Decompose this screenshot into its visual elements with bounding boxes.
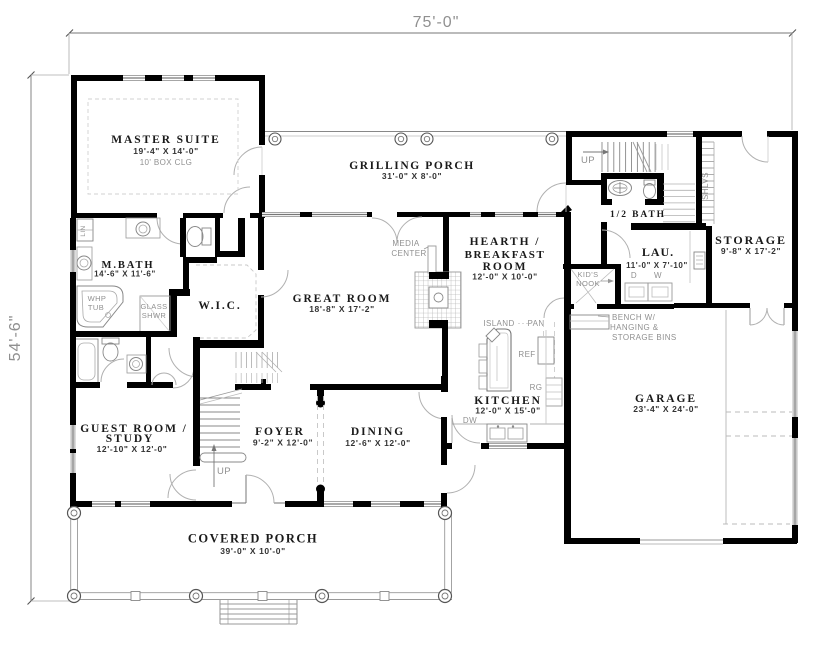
svg-text:UP: UP (581, 155, 595, 166)
svg-text:KID'S: KID'S (578, 270, 599, 279)
svg-text:HANGING &: HANGING & (610, 323, 659, 332)
svg-text:CENTER: CENTER (391, 249, 426, 258)
svg-text:NOOK: NOOK (576, 279, 600, 288)
svg-text:9'-8" X 17'-2": 9'-8" X 17'-2" (721, 246, 781, 256)
svg-text:BENCH W/: BENCH W/ (612, 313, 656, 322)
svg-text:FOYER: FOYER (255, 426, 305, 438)
svg-text:SHWR: SHWR (142, 311, 167, 320)
svg-text:54'-6": 54'-6" (7, 315, 24, 362)
svg-text:LAU.: LAU. (642, 245, 674, 259)
svg-text:STORAGE: STORAGE (715, 233, 787, 247)
svg-text:10' BOX CLG: 10' BOX CLG (140, 158, 193, 167)
svg-text:SHLVS: SHLVS (701, 172, 710, 200)
svg-text:RG: RG (530, 383, 543, 392)
svg-text:MASTER SUITE: MASTER SUITE (111, 134, 220, 146)
svg-text:31'-0" X 8'-0": 31'-0" X 8'-0" (382, 171, 442, 181)
svg-text:DINING: DINING (351, 426, 405, 438)
svg-text:WHP: WHP (88, 294, 107, 303)
svg-text:12'-6" X 12'-0": 12'-6" X 12'-0" (345, 438, 411, 448)
svg-text:MEDIA: MEDIA (392, 239, 420, 248)
svg-text:LIN: LIN (80, 225, 87, 236)
svg-text:1/2 BATH: 1/2 BATH (610, 210, 666, 220)
svg-text:GLASS: GLASS (140, 302, 167, 311)
svg-text:12'-0" X 10'-0": 12'-0" X 10'-0" (472, 272, 538, 282)
svg-text:23'-4" X 24'-0": 23'-4" X 24'-0" (633, 404, 699, 414)
svg-text:STORAGE BINS: STORAGE BINS (612, 333, 677, 342)
svg-text:75'-0": 75'-0" (413, 14, 460, 31)
svg-text:19'-4" X 14'-0": 19'-4" X 14'-0" (133, 146, 199, 156)
svg-text:18'-8" X 17'-2": 18'-8" X 17'-2" (309, 304, 375, 314)
svg-text:REF: REF (518, 350, 535, 359)
svg-text:DW: DW (463, 416, 477, 425)
svg-text:UP: UP (217, 466, 231, 477)
svg-text:ISLAND: ISLAND (483, 319, 514, 328)
svg-text:11'-0" X 7'-10": 11'-0" X 7'-10" (626, 261, 688, 270)
svg-text:W: W (654, 271, 662, 280)
svg-text:12'-0" X 15'-0": 12'-0" X 15'-0" (475, 406, 541, 416)
svg-text:W.I.C.: W.I.C. (198, 300, 241, 312)
svg-text:COVERED PORCH: COVERED PORCH (188, 532, 318, 546)
svg-text:D: D (631, 271, 637, 280)
svg-text:PAN: PAN (527, 319, 544, 328)
svg-text:BREAKFAST: BREAKFAST (465, 249, 546, 261)
svg-text:HEARTH /: HEARTH / (470, 236, 541, 248)
svg-text:39'-0" X 10'-0": 39'-0" X 10'-0" (220, 546, 286, 556)
svg-text:14'-6" X 11'-6": 14'-6" X 11'-6" (94, 270, 156, 279)
svg-text:12'-10" X 12'-0": 12'-10" X 12'-0" (97, 444, 168, 454)
svg-text:TUB: TUB (88, 303, 104, 312)
svg-text:9'-2" X 12'-0": 9'-2" X 12'-0" (253, 438, 313, 448)
